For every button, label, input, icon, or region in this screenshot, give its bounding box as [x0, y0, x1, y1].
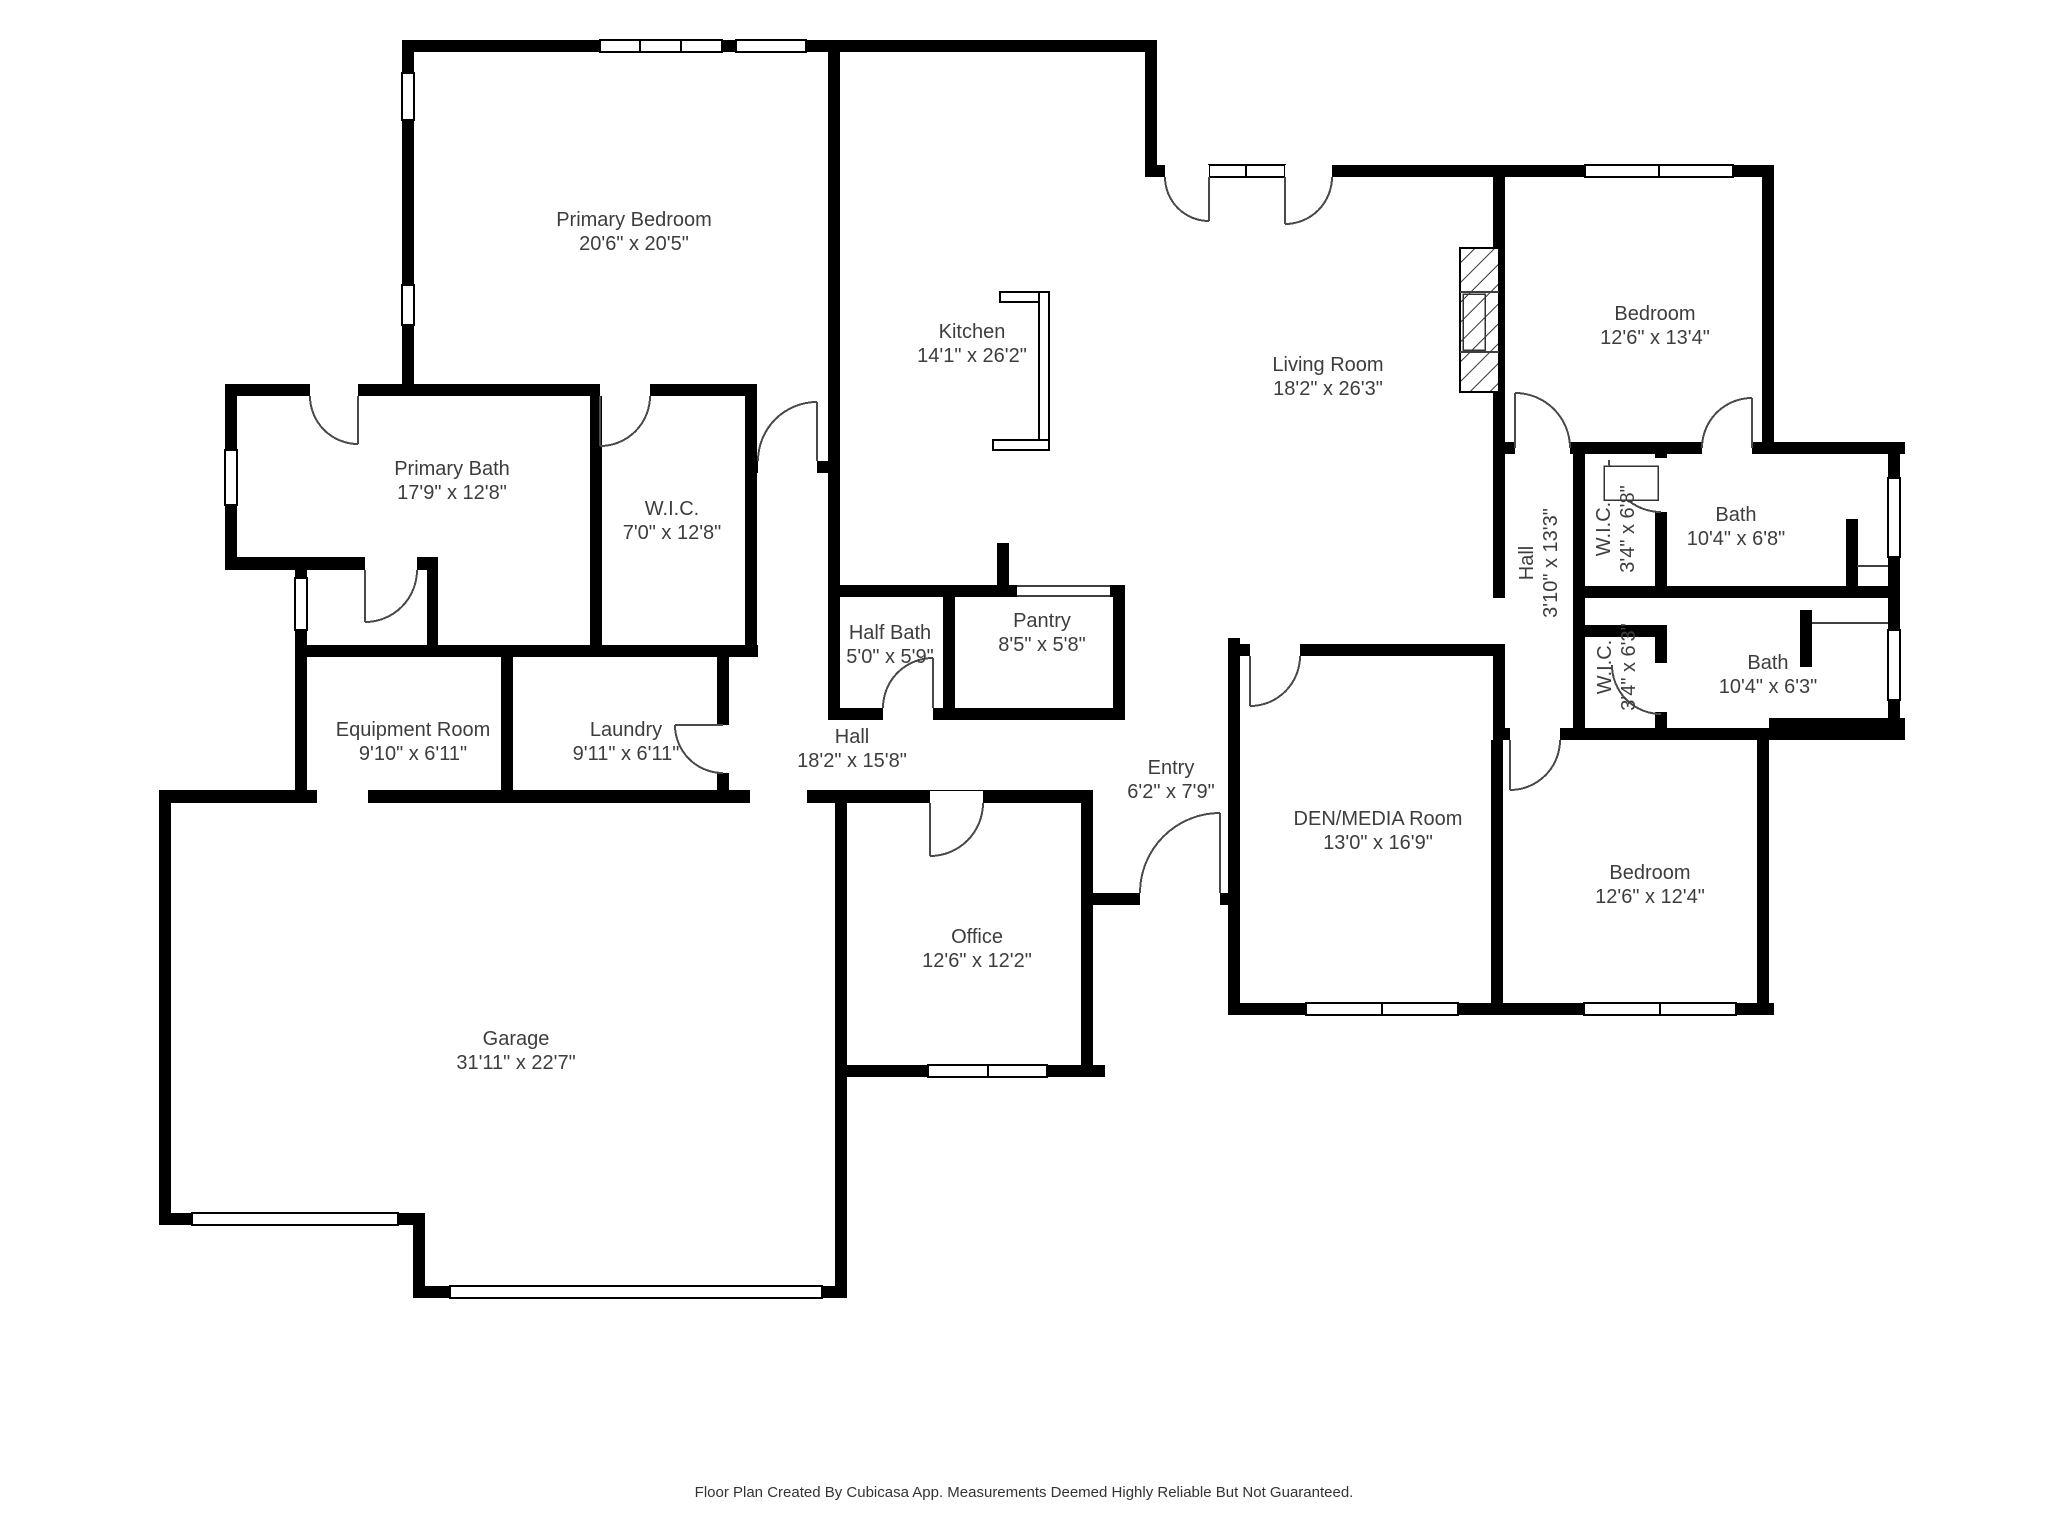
room-label-wic-primary: W.I.C. 7'0" x 12'8" — [623, 497, 722, 545]
room-dims: 3'4" x 6'8" — [1616, 485, 1640, 572]
room-name: Entry — [1127, 756, 1214, 780]
room-label-primary-bedroom: Primary Bedroom 20'6" x 20'5" — [556, 208, 712, 256]
room-label-hall-bedrooms: Hall 3'10" x 13'3" — [1515, 508, 1563, 618]
room-name: Bedroom — [1595, 861, 1705, 885]
room-dims: 13'0" x 16'9" — [1294, 831, 1463, 855]
room-dims: 10'4" x 6'3" — [1719, 675, 1818, 699]
room-dims: 14'1" x 26'2" — [917, 344, 1027, 368]
room-dims: 6'2" x 7'9" — [1127, 780, 1214, 804]
room-name: Half Bath — [846, 621, 933, 645]
room-name: Bath — [1687, 503, 1786, 527]
room-dims: 10'4" x 6'8" — [1687, 527, 1786, 551]
garage-door-right — [450, 1286, 822, 1298]
walls — [159, 40, 1905, 1298]
room-dims: 9'10" x 6'11" — [336, 742, 491, 766]
room-name: Primary Bath — [394, 457, 510, 481]
room-dims: 20'6" x 20'5" — [556, 232, 712, 256]
room-dims: 12'6" x 13'4" — [1600, 326, 1710, 350]
room-name: Bath — [1719, 651, 1818, 675]
room-dims: 3'10" x 13'3" — [1539, 508, 1563, 618]
room-label-office: Office 12'6" x 12'2" — [922, 925, 1032, 973]
room-name: DEN/MEDIA Room — [1294, 807, 1463, 831]
room-name: Pantry — [998, 609, 1085, 633]
room-name: Living Room — [1272, 353, 1383, 377]
room-label-half-bath: Half Bath 5'0" x 5'9" — [846, 621, 933, 669]
footer-disclaimer: Floor Plan Created By Cubicasa App. Meas… — [695, 1484, 1354, 1501]
room-dims: 12'6" x 12'4" — [1595, 885, 1705, 909]
room-dims: 3'4" x 6'3" — [1617, 623, 1641, 710]
room-name: Laundry — [573, 718, 680, 742]
room-label-laundry: Laundry 9'11" x 6'11" — [573, 718, 680, 766]
floor-plan-page: Primary Bedroom 20'6" x 20'5" Kitchen 14… — [0, 0, 2048, 1536]
room-label-den: DEN/MEDIA Room 13'0" x 16'9" — [1294, 807, 1463, 855]
garage-door-left — [192, 1213, 398, 1225]
opening-equipment-garage — [317, 790, 368, 803]
room-dims: 9'11" x 6'11" — [573, 742, 680, 766]
room-name: Equipment Room — [336, 718, 491, 742]
room-label-bedroom-top-right: Bedroom 12'6" x 13'4" — [1600, 302, 1710, 350]
room-dims: 31'11" x 22'7" — [456, 1051, 575, 1075]
room-dims: 7'0" x 12'8" — [623, 521, 722, 545]
opening-pantry — [1017, 585, 1110, 597]
room-label-pantry: Pantry 8'5" x 5'8" — [998, 609, 1085, 657]
room-label-garage: Garage 31'11" x 22'7" — [456, 1027, 575, 1075]
room-label-bath-upper: Bath 10'4" x 6'8" — [1687, 503, 1786, 551]
room-dims: 8'5" x 5'8" — [998, 633, 1085, 657]
room-label-bedroom-bottom-right: Bedroom 12'6" x 12'4" — [1595, 861, 1705, 909]
room-name: W.I.C. — [623, 497, 722, 521]
room-name: Garage — [456, 1027, 575, 1051]
room-label-living-room: Living Room 18'2" x 26'3" — [1272, 353, 1383, 401]
room-label-hall-main: Hall 18'2" x 15'8" — [797, 725, 907, 773]
room-name: Office — [922, 925, 1032, 949]
room-dims: 17'9" x 12'8" — [394, 481, 510, 505]
room-label-entry: Entry 6'2" x 7'9" — [1127, 756, 1214, 804]
opening-hall-garage — [750, 790, 807, 803]
room-label-primary-bath: Primary Bath 17'9" x 12'8" — [394, 457, 510, 505]
fireplace-icon — [1460, 248, 1499, 392]
room-dims: 18'2" x 15'8" — [797, 749, 907, 773]
windows — [192, 40, 1900, 1298]
room-label-kitchen: Kitchen 14'1" x 26'2" — [917, 320, 1027, 368]
room-name: Hall — [1515, 508, 1539, 618]
room-name: Hall — [797, 725, 907, 749]
room-dims: 18'2" x 26'3" — [1272, 377, 1383, 401]
room-dims: 12'6" x 12'2" — [922, 949, 1032, 973]
room-label-wic-lower: W.I.C. 3'4" x 6'3" — [1593, 623, 1641, 710]
kitchen-island-icon — [993, 292, 1049, 450]
room-label-bath-lower: Bath 10'4" x 6'3" — [1719, 651, 1818, 699]
room-name: W.I.C. — [1593, 623, 1617, 710]
room-name: Kitchen — [917, 320, 1027, 344]
room-name: Bedroom — [1600, 302, 1710, 326]
room-label-equipment-room: Equipment Room 9'10" x 6'11" — [336, 718, 491, 766]
floor-plan-drawing — [0, 0, 2048, 1536]
room-dims: 5'0" x 5'9" — [846, 645, 933, 669]
room-label-wic-upper: W.I.C. 3'4" x 6'8" — [1592, 485, 1640, 572]
room-name: W.I.C. — [1592, 485, 1616, 572]
room-name: Primary Bedroom — [556, 208, 712, 232]
